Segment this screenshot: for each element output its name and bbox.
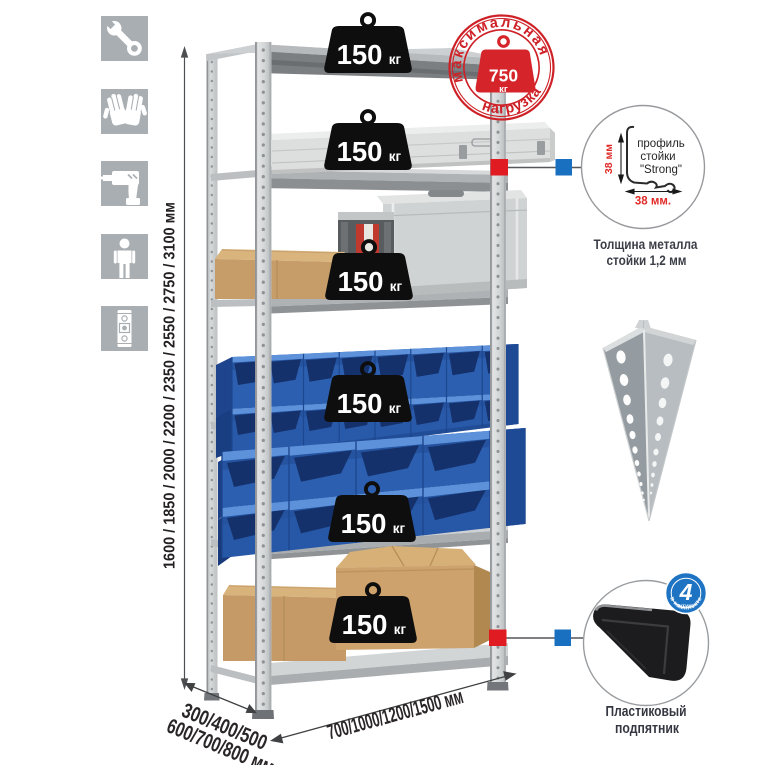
svg-text:стойки: стойки [640,151,675,163]
svg-text:150: 150 [338,266,384,297]
svg-text:150: 150 [337,136,383,167]
svg-text:кг: кг [389,149,402,164]
svg-text:150: 150 [337,39,383,70]
svg-text:кг: кг [390,279,403,294]
svg-text:38 мм.: 38 мм. [635,196,671,208]
svg-text:кг: кг [389,401,402,416]
svg-text:кг: кг [389,52,402,67]
svg-text:4: 4 [679,579,693,605]
svg-text:150: 150 [341,508,387,539]
svg-text:подпятник: подпятник [615,721,680,737]
svg-text:150: 150 [342,609,388,640]
svg-text:750: 750 [489,66,518,86]
svg-text:1600 / 1850 / 2000 / 2200 / 23: 1600 / 1850 / 2000 / 2200 / 2350 / 2550 … [162,202,179,569]
svg-text:150: 150 [337,388,383,419]
svg-text:кг: кг [393,521,406,536]
svg-text:Пластиковый: Пластиковый [606,704,687,720]
svg-text:стойки 1,2 мм: стойки 1,2 мм [607,252,687,268]
svg-text:Толщина металла: Толщина металла [594,236,698,252]
svg-text:кг: кг [499,84,508,95]
svg-text:кг: кг [394,622,407,637]
svg-text:штуки: штуки [678,604,695,610]
svg-text:38 мм: 38 мм [603,144,615,174]
svg-text:профиль: профиль [637,138,685,150]
svg-text:"Strong": "Strong" [640,164,682,176]
